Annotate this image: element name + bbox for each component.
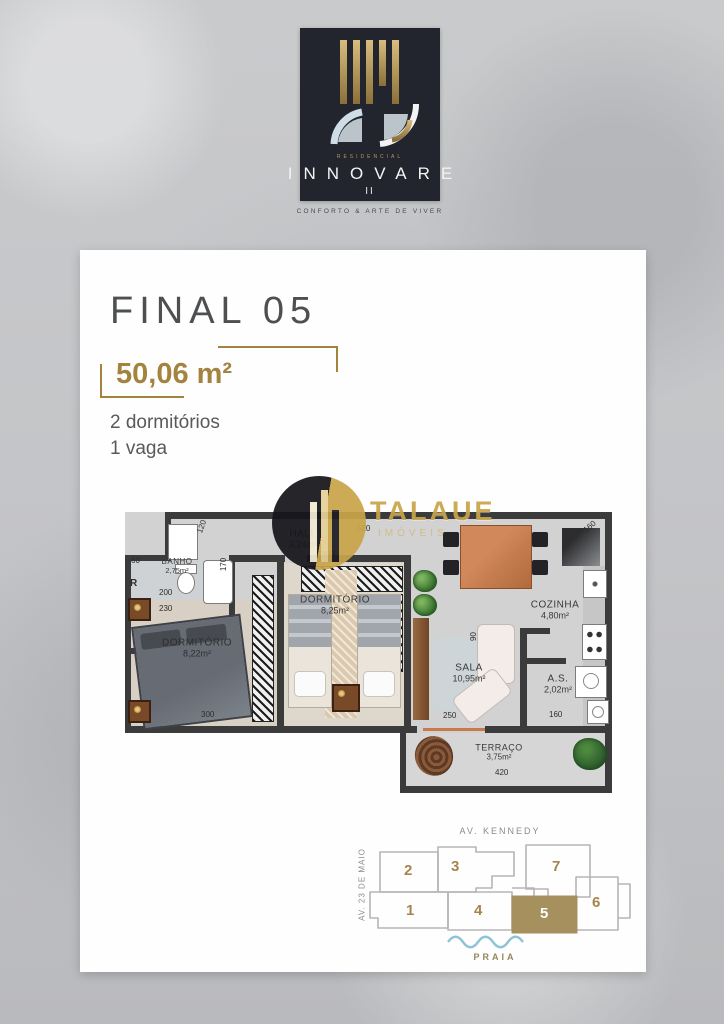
site-plan: AV. KENNEDY AV. 23 DE MAIO 1 2 3: [330, 818, 640, 983]
room-label-as: A.S. 2,02m²: [544, 674, 572, 695]
spec-vagas: 1 vaga: [110, 438, 167, 459]
room-label-terraco: TERRAÇO 3,75m²: [475, 743, 523, 762]
dim-label: 60: [131, 556, 140, 565]
spec-dormitorios: 2 dormitórios: [110, 412, 220, 433]
beach-wave-icon: [448, 937, 523, 948]
watermark-subtitle: IMÓVEIS: [378, 528, 448, 539]
bathtub-icon: [203, 560, 233, 604]
wall: [404, 562, 411, 726]
watermark-logo-icon: [272, 476, 366, 570]
plant-icon: [413, 570, 437, 592]
room-name: DORMITÓRIO: [162, 638, 232, 649]
chair-icon: [532, 532, 548, 547]
room-name: SALA: [452, 663, 485, 674]
room-label-sala: SALA 10,95m²: [452, 663, 485, 684]
room-area: 10,95m²: [452, 674, 485, 684]
room-area: 8,25m²: [300, 606, 370, 616]
unit-number-7: 7: [552, 858, 560, 875]
room-label-cozinha: COZINHA 4,80m²: [531, 600, 580, 621]
unit-card: FINAL 05 50,06 m² 2 dormitórios 1 vaga: [80, 250, 646, 972]
washing-machine-icon: [575, 666, 607, 698]
unit-number-4: 4: [474, 902, 482, 919]
watermark-bar-icon: [321, 490, 328, 562]
room-area: 3,75m²: [475, 753, 523, 762]
toilet-bowl-icon: [177, 572, 195, 594]
beach-label: PRAIA: [440, 952, 550, 962]
innovare-monogram-icon: [300, 28, 440, 153]
dim-label: 250: [443, 711, 456, 720]
laundry-tub-icon: [587, 700, 609, 724]
watermark-name: TALAUE: [370, 496, 496, 527]
brand-logo: RESIDENCIAL INNOVARE II: [300, 28, 440, 201]
wall: [485, 726, 612, 733]
kitchen-sink-icon: [583, 570, 607, 598]
room-name: A.S.: [544, 674, 572, 685]
chair-icon: [532, 560, 548, 575]
unit-number-6: 6: [592, 894, 600, 911]
stove-icon: [582, 624, 607, 660]
flyer-page: RESIDENCIAL INNOVARE II CONFORTO & ARTE …: [0, 0, 724, 1024]
washer-door-icon: [583, 673, 599, 689]
room-label-dormitorio1: DORMITÓRIO 8,22m²: [162, 638, 232, 659]
dim-label: 90: [469, 632, 478, 641]
wall: [526, 658, 566, 664]
pillow-icon: [294, 671, 326, 697]
tv-rack-icon: [413, 618, 429, 720]
wall: [520, 628, 550, 634]
room-area: 8,22m²: [162, 649, 232, 659]
logo-numeral: II: [300, 186, 440, 197]
room-area: 4,80m²: [531, 611, 580, 621]
room-label-dormitorio2: DORMITÓRIO 8,25m²: [300, 595, 370, 616]
logo-residencial-label: RESIDENCIAL: [300, 154, 440, 160]
wall: [520, 628, 527, 726]
nightstand-icon: [332, 684, 360, 712]
dim-label: R: [130, 578, 137, 589]
watermark-bar-icon: [332, 510, 339, 562]
watermark-bar-icon: [310, 502, 317, 562]
dim-label: 200: [159, 588, 172, 597]
plant-icon: [573, 738, 607, 770]
room-name: BANHO: [162, 557, 193, 566]
room-area: 2,75m²: [162, 566, 193, 575]
dim-label: 170: [219, 558, 228, 571]
terrace-door-track: [423, 728, 485, 731]
plant-icon: [413, 594, 437, 616]
room-label-banho: BANHO 2,75m²: [162, 557, 193, 575]
unit-number-3: 3: [451, 858, 459, 875]
wardrobe-icon: [252, 575, 274, 722]
dim-label: 300: [201, 710, 214, 719]
room-name: TERRAÇO: [475, 743, 523, 753]
unit-number-1: 1: [406, 902, 414, 919]
room-area: 2,02m²: [544, 685, 572, 695]
unit-number-2: 2: [404, 862, 412, 879]
area-badge: 50,06 m²: [100, 346, 340, 406]
fridge-icon: [562, 528, 600, 566]
nightstand-icon: [128, 598, 151, 621]
unit-title: FINAL 05: [110, 290, 317, 333]
watermark: TALAUE IMÓVEIS: [272, 476, 502, 572]
wall: [400, 726, 406, 793]
logo-tagline: CONFORTO & ARTE DE VIVER: [255, 208, 485, 215]
pillow-icon: [363, 671, 395, 697]
wall: [400, 786, 612, 793]
entry-sink-icon: [168, 524, 198, 560]
unit-number-5-highlighted: 5: [540, 905, 548, 922]
dim-label: 420: [495, 768, 508, 777]
room-name: DORMITÓRIO: [300, 595, 370, 606]
logo-name: INNOVARE: [235, 164, 505, 184]
bracket-top-right: [218, 346, 338, 372]
nightstand-icon: [128, 700, 151, 723]
room-name: COZINHA: [531, 600, 580, 611]
wall: [277, 562, 284, 726]
unit-area-value: 50,06 m²: [116, 358, 232, 391]
dim-label: 160: [549, 710, 562, 719]
tub-basin-icon: [592, 706, 604, 718]
unit-specs: 2 dormitórios 1 vaga: [110, 410, 220, 461]
dim-label: 230: [159, 604, 172, 613]
